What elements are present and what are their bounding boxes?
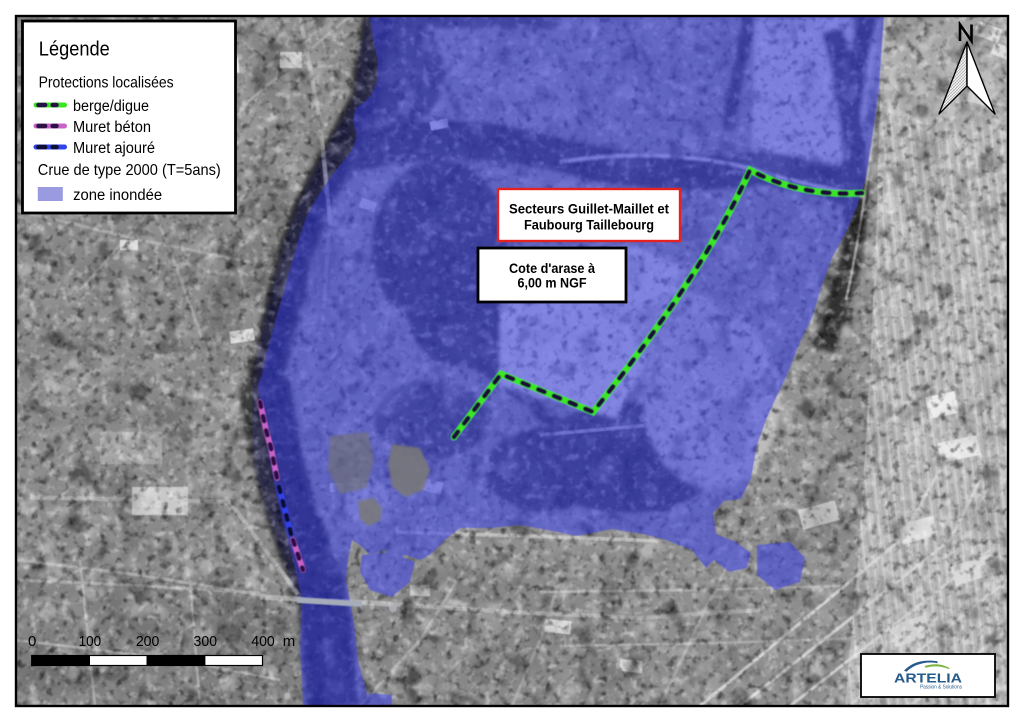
svg-text:m: m [283,633,296,650]
svg-text:Faubourg Taillebourg: Faubourg Taillebourg [524,217,654,232]
svg-text:zone inondée: zone inondée [73,187,162,204]
svg-text:Légende: Légende [39,38,110,61]
svg-text:Muret béton: Muret béton [73,119,151,136]
svg-text:berge/digue: berge/digue [73,98,149,115]
svg-text:Crue de type 2000 (T=5ans): Crue de type 2000 (T=5ans) [38,162,221,179]
svg-text:300: 300 [194,633,218,650]
svg-text:ARTELIA: ARTELIA [894,671,963,686]
svg-text:Muret ajouré: Muret ajouré [73,140,155,157]
svg-text:Protections localisées: Protections localisées [39,75,174,92]
svg-text:0: 0 [28,633,36,650]
svg-text:Secteurs Guillet-Maillet et: Secteurs Guillet-Maillet et [509,202,669,217]
svg-text:Cote d'arase à: Cote d'arase à [509,261,595,276]
svg-text:200: 200 [136,633,160,650]
svg-text:Passion & Solutions: Passion & Solutions [920,685,962,691]
svg-text:100: 100 [79,633,102,650]
svg-text:400: 400 [251,633,275,650]
svg-text:6,00 m NGF: 6,00 m NGF [518,276,587,291]
